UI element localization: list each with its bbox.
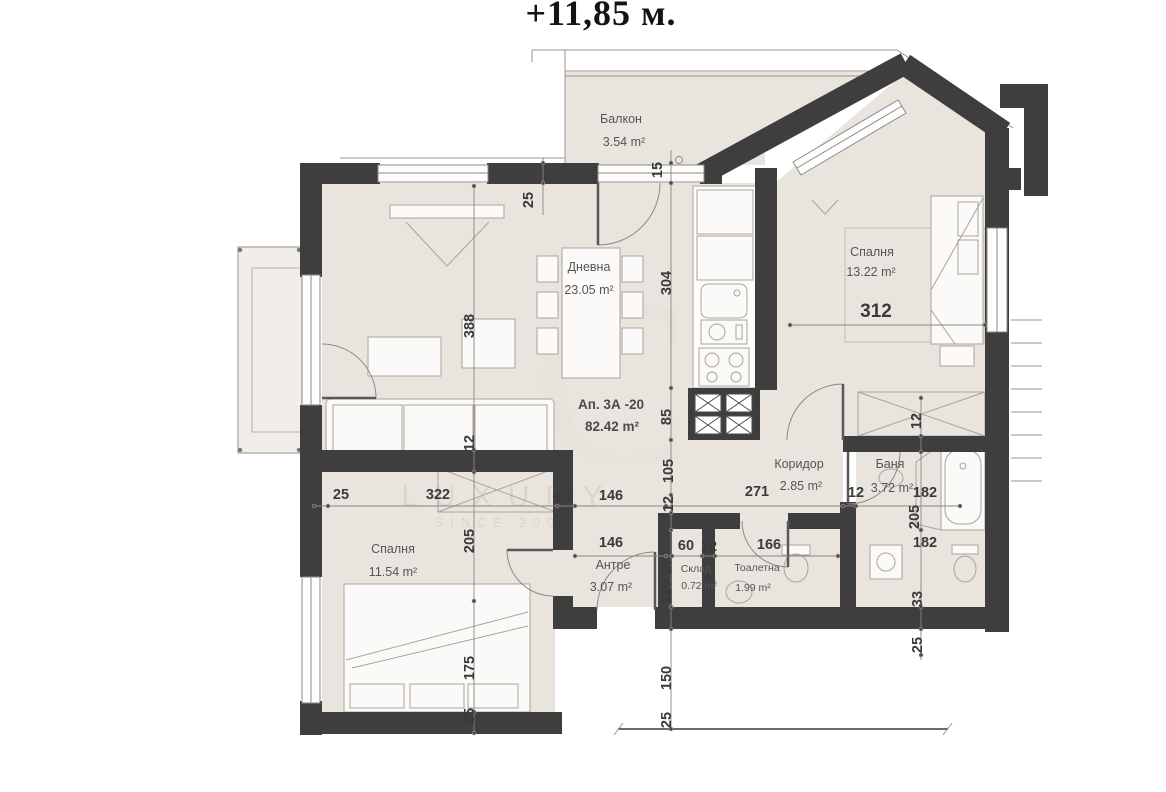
bath-name: Баня bbox=[876, 457, 905, 471]
dim-bath-205: 205 bbox=[907, 505, 923, 529]
bedroom1-area: 13.22 m² bbox=[846, 265, 895, 279]
balcony-name: Балкон bbox=[600, 112, 642, 126]
dim-25d: 25 bbox=[659, 712, 675, 728]
dim-living-388: 388 bbox=[462, 314, 478, 338]
bedroom2-area: 11.54 m² bbox=[369, 565, 417, 579]
toilet-name: Тоалетна bbox=[734, 562, 779, 574]
dim-corridor-271: 271 bbox=[745, 484, 769, 500]
corridor-area: 2.85 m² bbox=[780, 479, 822, 493]
dim-wardrobe-12: 12 bbox=[909, 413, 925, 429]
storage-area: 0.72 m² bbox=[681, 580, 717, 592]
dim-toilet-166: 166 bbox=[757, 537, 781, 553]
dim-bedroom2-322: 322 bbox=[426, 487, 450, 503]
bedroom1-name: Спалня bbox=[850, 245, 894, 259]
terrace bbox=[238, 247, 302, 453]
apartment-name: Ап. 3А -20 bbox=[578, 397, 644, 412]
dim-150: 150 bbox=[659, 666, 675, 690]
dim-bedroom2-25: 25 bbox=[333, 487, 349, 503]
entry-name: Антре bbox=[596, 558, 631, 572]
dim-25e: 25 bbox=[910, 637, 926, 653]
dim-top-wall: 25 bbox=[521, 192, 537, 208]
dim-bath-12: 12 bbox=[848, 485, 864, 501]
dim-105: 105 bbox=[661, 459, 677, 483]
dim-33: 33 bbox=[910, 591, 926, 607]
entry-area: 3.07 m² bbox=[590, 580, 632, 594]
elevation-title: +11,85 м. bbox=[18, 0, 1166, 34]
dim-kitchen-304: 304 bbox=[659, 271, 675, 295]
toilet-area: 1.99 m² bbox=[735, 582, 771, 594]
dim-120: 120 bbox=[659, 580, 675, 604]
dim-12b: 12 bbox=[661, 496, 677, 512]
dim-storage-60: 60 bbox=[678, 538, 694, 554]
dim-storage-12: 12 bbox=[701, 539, 717, 555]
floor-plan-drawing: С LUXURY SINCE 2006 bbox=[0, 0, 1166, 792]
dim-balcony-gap: 15 bbox=[650, 162, 666, 178]
bedroom2-name: Спалня bbox=[371, 542, 415, 556]
floor-plan-page: +11,85 м. bbox=[0, 0, 1166, 792]
apartment-area: 82.42 m² bbox=[585, 419, 640, 434]
dim-wall-12a: 12 bbox=[554, 490, 570, 506]
dim-85: 85 bbox=[659, 409, 675, 425]
balcony-area: 3.54 m² bbox=[603, 135, 645, 149]
dim-bedroom2-25b: 25 bbox=[462, 708, 478, 724]
dim-living-12: 12 bbox=[462, 435, 478, 451]
wall-hatch-ticks bbox=[1011, 320, 1042, 481]
dim-entry-146b: 146 bbox=[599, 535, 623, 551]
dim-entry-146a: 146 bbox=[599, 488, 623, 504]
dim-bedroom2-205: 205 bbox=[462, 529, 478, 553]
storage-name: Склад bbox=[681, 563, 711, 575]
bath-area: 3.72 m² bbox=[871, 481, 913, 495]
dim-bedroom1-312: 312 bbox=[860, 301, 892, 322]
living-name: Дневна bbox=[568, 260, 611, 274]
dim-25c: 25 bbox=[659, 558, 675, 574]
corridor-name: Коридор bbox=[774, 457, 823, 471]
dim-bath-182b: 182 bbox=[913, 535, 937, 551]
dim-bath-182a: 182 bbox=[913, 485, 937, 501]
dim-bedroom2-175: 175 bbox=[462, 656, 478, 680]
living-area: 23.05 m² bbox=[564, 283, 613, 297]
